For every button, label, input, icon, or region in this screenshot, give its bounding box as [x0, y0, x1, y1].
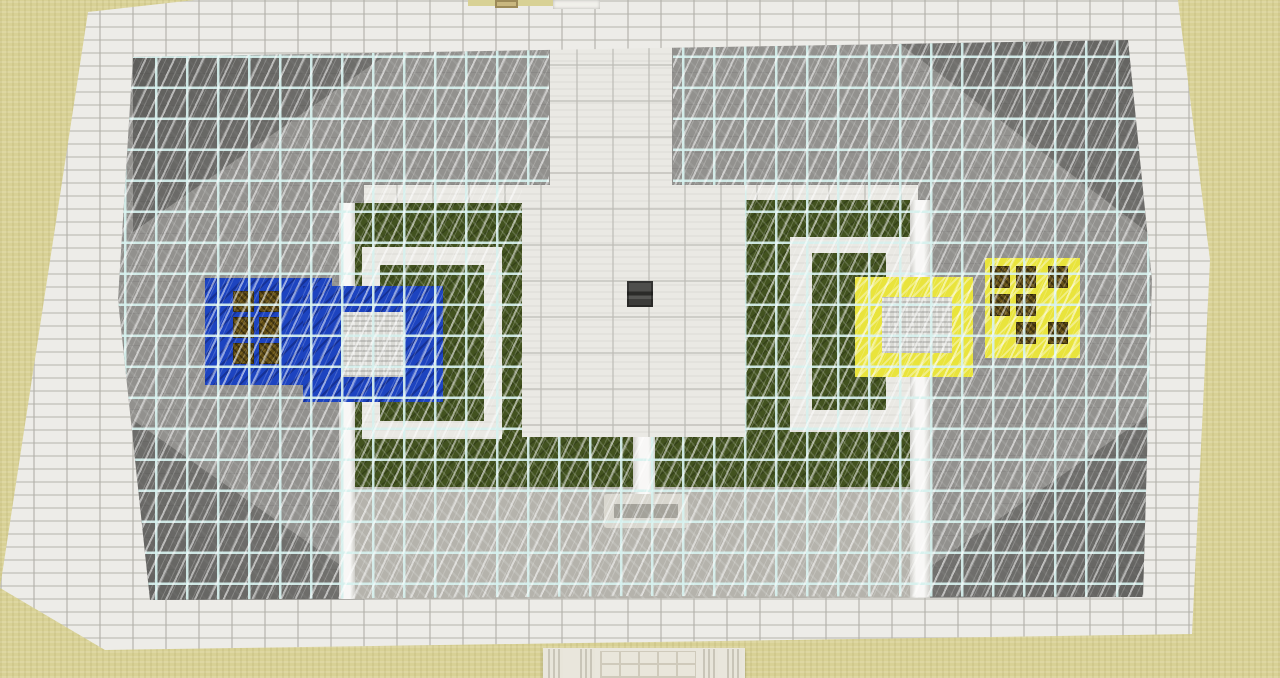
- roof-pole-white: [553, 0, 600, 9]
- exterior-structures: [0, 0, 1280, 678]
- entrance-column-3: [703, 649, 718, 678]
- entrance-chiseled-wall: [600, 651, 696, 678]
- roof-pole-tan: [495, 0, 518, 8]
- entrance-column-1: [548, 649, 563, 678]
- entrance-column-2: [580, 649, 595, 678]
- arena-screenshot: [0, 0, 1280, 678]
- entrance-column-4: [727, 649, 742, 678]
